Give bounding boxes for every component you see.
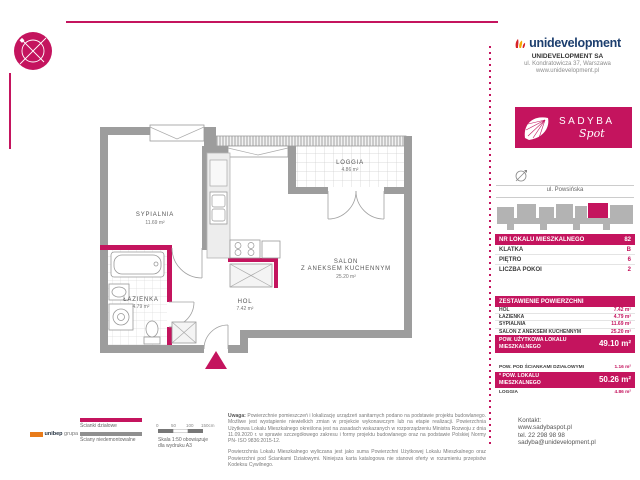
mini-compass-icon	[514, 169, 528, 183]
scale-ruler-ticks: 0 50 100 150cm	[156, 423, 216, 428]
pietro-label: PIĘTRO	[499, 257, 521, 263]
unit-table-header: NR LOKALU MIESZKALNEGO 82	[495, 234, 635, 245]
total-area-row: * POW. LOKALU MIESZKALNEGO 50.26 m²	[495, 372, 635, 388]
table-row: PIĘTRO 6	[495, 255, 635, 265]
area-table-title: ZESTAWIENIE POWIERZCHNI	[499, 299, 584, 305]
kitchen-sink	[210, 192, 227, 224]
contact-website: www.sadybaspot.pl	[518, 424, 596, 431]
legend-structural-swatch	[80, 432, 142, 436]
exterior-wall-hatched	[216, 136, 406, 146]
site-plan-building	[497, 204, 633, 230]
area-lazienka: 4.79 m²	[133, 304, 150, 310]
area-salon: 25.20 m²	[336, 274, 356, 280]
scale-ruler-bar	[158, 429, 204, 433]
catalog-card-page: { "brand": { "magenta": "#c4145e", "navy…	[0, 0, 640, 480]
project-logo-box: SADYBA Spot	[515, 107, 632, 148]
label-salon-2: Z ANEKSEM KUCHENNYM	[301, 266, 391, 272]
disclaimer-lead: Uwaga:	[228, 413, 246, 419]
toilet-tank	[144, 337, 160, 344]
bedroom-window	[150, 125, 204, 141]
entry-triangle-marker	[205, 351, 227, 369]
hol-value: 7.42 m²	[614, 307, 631, 313]
area-table-header: ZESTAWIENIE POWIERZCHNI	[495, 296, 635, 307]
legend-partition-swatch	[80, 418, 142, 422]
klatka-value: B	[627, 247, 631, 253]
label-sypialnia: SYPIALNIA	[136, 212, 174, 218]
table-row: HOL 7.42 m²	[495, 307, 635, 314]
partition-area-value: 1.16 m²	[614, 365, 631, 370]
site-plan-unit-highlight	[588, 203, 608, 218]
stove	[230, 240, 260, 258]
loggia-area-label: LOGGIA	[499, 390, 518, 395]
fridge	[262, 241, 280, 258]
group-logo: unibep grupa	[30, 431, 78, 437]
group-logo-mark	[30, 432, 43, 437]
scale-tick: 50	[171, 423, 186, 428]
label-hol: HOL	[238, 299, 253, 305]
partition-area-label: POW. POD ŚCIANKAMI DZIAŁOWYMI	[499, 365, 584, 370]
area-table: ZESTAWIENIE POWIERZCHNI HOL 7.42 m² ŁAZI…	[495, 296, 635, 397]
project-subname: Spot	[579, 127, 605, 140]
street-line-top	[496, 185, 634, 186]
street-name: ul. Powsińska	[496, 187, 634, 193]
balcony-door-left-arc	[328, 191, 356, 219]
project-name: SADYBA	[559, 116, 615, 127]
hol-label: HOL	[499, 307, 510, 313]
usable-area-row: POW. UŻYTKOWA LOKALU MIESZKALNEGO 49.10 …	[495, 335, 635, 353]
table-row: ŁAZIENKA 4.79 m²	[495, 314, 635, 321]
sypialnia-label: SYPIALNIA	[499, 321, 526, 327]
street-line-bottom	[496, 197, 634, 198]
salon-label: SALON Z ANEKSEM KUCHENNYM	[499, 329, 581, 335]
kitchen-window	[228, 146, 288, 157]
entry-door-arc	[204, 325, 228, 349]
klatka-label: KLATKA	[499, 247, 523, 253]
balcony-door-right-arc	[356, 191, 384, 219]
table-row: SYPIALNIA 11.69 m²	[495, 321, 635, 328]
kitchen-cabinet	[210, 160, 227, 186]
unit-table: NR LOKALU MIESZKALNEGO 82 KLATKA B PIĘTR…	[495, 234, 635, 274]
disclaimer-paragraph-1: Powierzchnie pomieszczeń i lokalizację u…	[228, 413, 486, 444]
table-row: SALON Z ANEKSEM KUCHENNYM 25.20 m²	[495, 329, 635, 335]
sadyba-leaf-icon	[521, 112, 555, 144]
group-logo-light-text: grupa	[64, 431, 78, 437]
toilet-bowl	[146, 321, 158, 337]
scale-tick: 150cm	[201, 423, 216, 428]
kitchen-fixtures	[207, 153, 280, 258]
lazienka-value: 4.79 m²	[614, 314, 631, 320]
total-area-value: 50.26 m²	[599, 375, 631, 384]
label-lazienka: ŁAZIENKA	[123, 297, 158, 303]
total-area-label: * POW. LOKALU MIESZKALNEGO	[499, 373, 579, 387]
unit-number-label: NR LOKALU MIESZKALNEGO	[499, 237, 584, 243]
table-row: LICZBA POKOI 2	[495, 265, 635, 274]
bedroom-door-arc	[172, 248, 202, 278]
lazienka-label: ŁAZIENKA	[499, 314, 524, 320]
area-sypialnia: 11.69 m²	[145, 220, 165, 226]
scale-tick: 100	[186, 423, 201, 428]
scale-tick: 0	[156, 423, 171, 428]
contact-heading: Kontakt:	[518, 417, 596, 424]
pietro-value: 6	[628, 257, 631, 263]
usable-area-value: 49.10 m²	[599, 339, 631, 348]
contact-phone: tel. 22 298 98 98	[518, 432, 596, 439]
label-salon: SALON	[334, 259, 358, 265]
disclaimer: Uwaga: Powierzchnie pomieszczeń i lokali…	[228, 413, 486, 473]
legend-structural-label: Ściany niedemontowalne	[80, 437, 136, 443]
area-hol: 7.42 m²	[237, 306, 254, 312]
label-loggia: LOGGIA	[336, 160, 364, 166]
pokoje-value: 2	[628, 267, 631, 273]
loggia-area-value: 4.86 m²	[614, 390, 631, 395]
partition-area-row: POW. POD ŚCIANKAMI DZIAŁOWYMI 1.16 m²	[495, 363, 635, 372]
loggia-area-row: LOGGIA 4.86 m²	[495, 388, 635, 397]
contact-email: sadyba@unidevelopment.pl	[518, 439, 596, 446]
salon-value: 25.20 m²	[611, 329, 631, 335]
contact-block: Kontakt: www.sadybaspot.pl tel. 22 298 9…	[518, 417, 596, 447]
legend-partition-label: Ścianki działowe	[80, 423, 117, 429]
usable-area-label: POW. UŻYTKOWA LOKALU MIESZKALNEGO	[499, 337, 579, 351]
group-logo-bold-text: unibep	[45, 431, 63, 437]
scale-note-line2: dla wydruku A3	[158, 443, 192, 449]
area-loggia: 4.86 m²	[342, 167, 359, 173]
table-row: KLATKA B	[495, 245, 635, 255]
pokoje-label: LICZBA POKOI	[499, 267, 542, 273]
sypialnia-value: 11.69 m²	[611, 321, 631, 327]
disclaimer-paragraph-2: Powierzchnia Lokalu Mieszkalnego wylicza…	[228, 449, 486, 468]
unit-number-value: 82	[624, 237, 631, 243]
